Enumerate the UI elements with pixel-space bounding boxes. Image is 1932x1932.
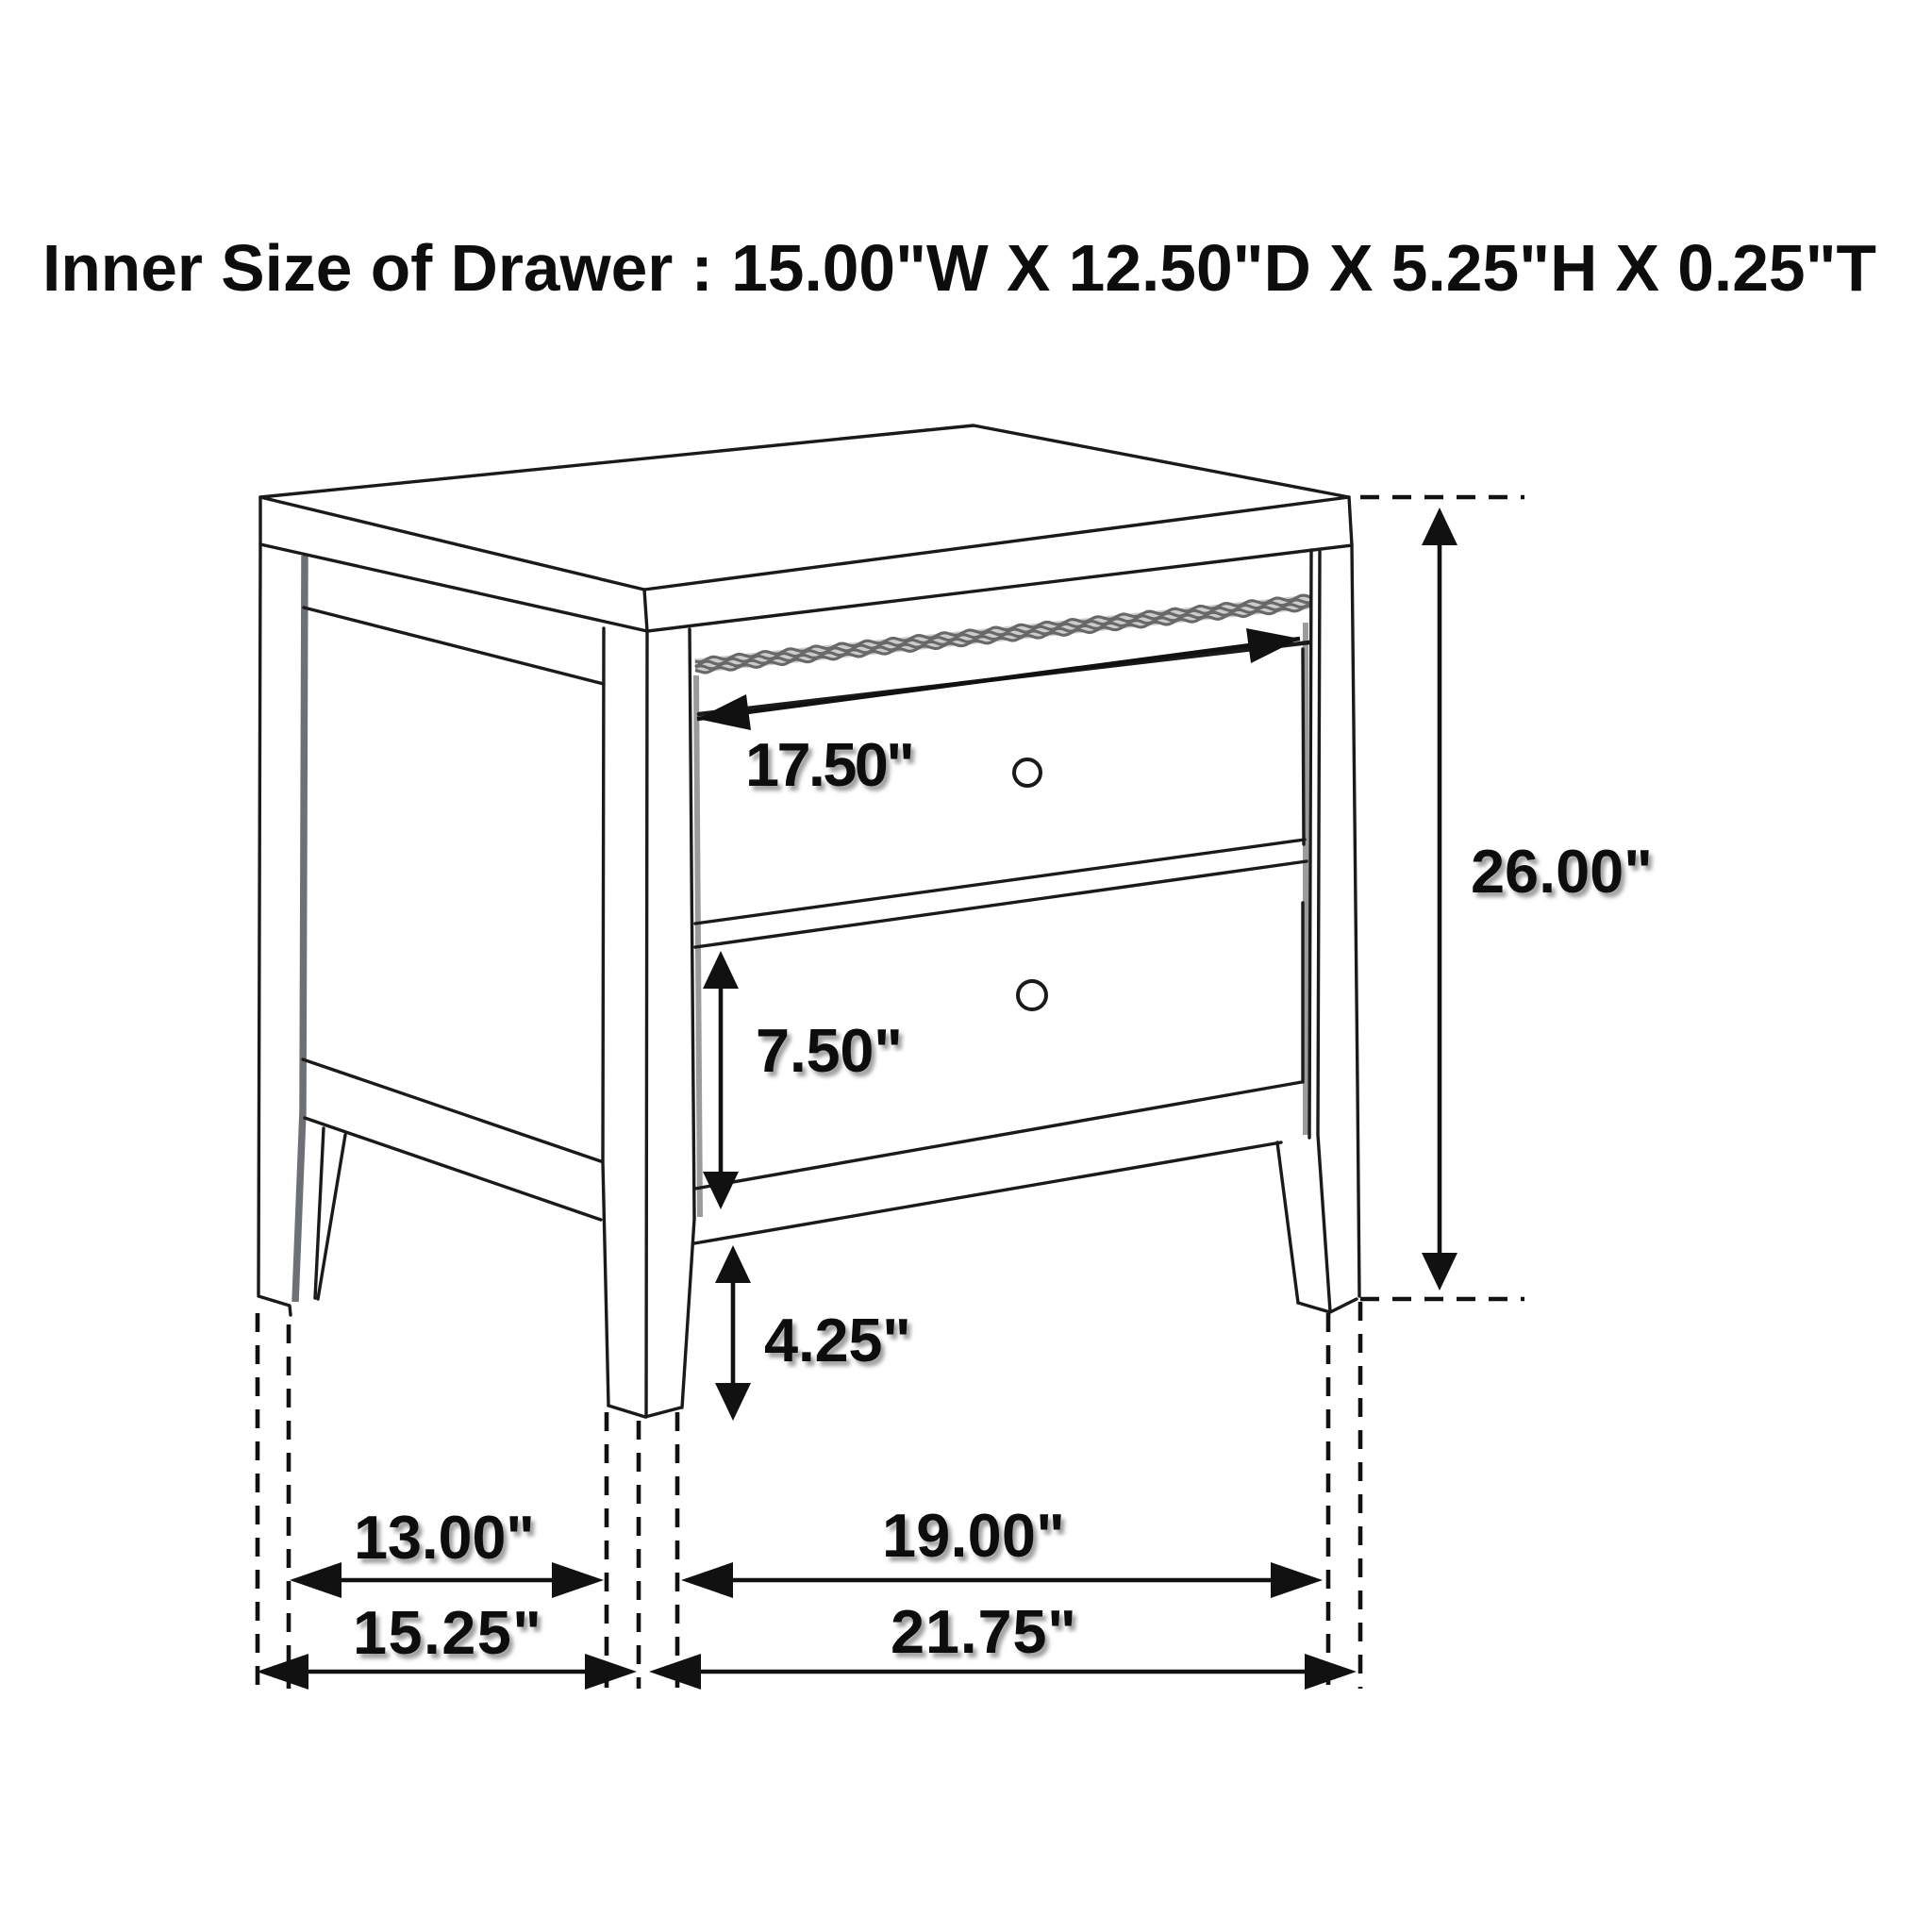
svg-text:7.50": 7.50" (756, 1016, 903, 1085)
svg-text:19.00": 19.00" (882, 1501, 1065, 1570)
svg-text:26.00": 26.00" (1471, 837, 1653, 906)
svg-text:Inner Size of Drawer : 15.00"W: Inner Size of Drawer : 15.00"W X 12.50"D… (42, 231, 1876, 305)
svg-text:15.25": 15.25" (353, 1598, 541, 1667)
svg-text:17.50": 17.50" (745, 730, 915, 799)
svg-text:4.25": 4.25" (764, 1306, 911, 1374)
svg-text:21.75": 21.75" (891, 1597, 1076, 1666)
svg-text:13.00": 13.00" (354, 1503, 535, 1572)
